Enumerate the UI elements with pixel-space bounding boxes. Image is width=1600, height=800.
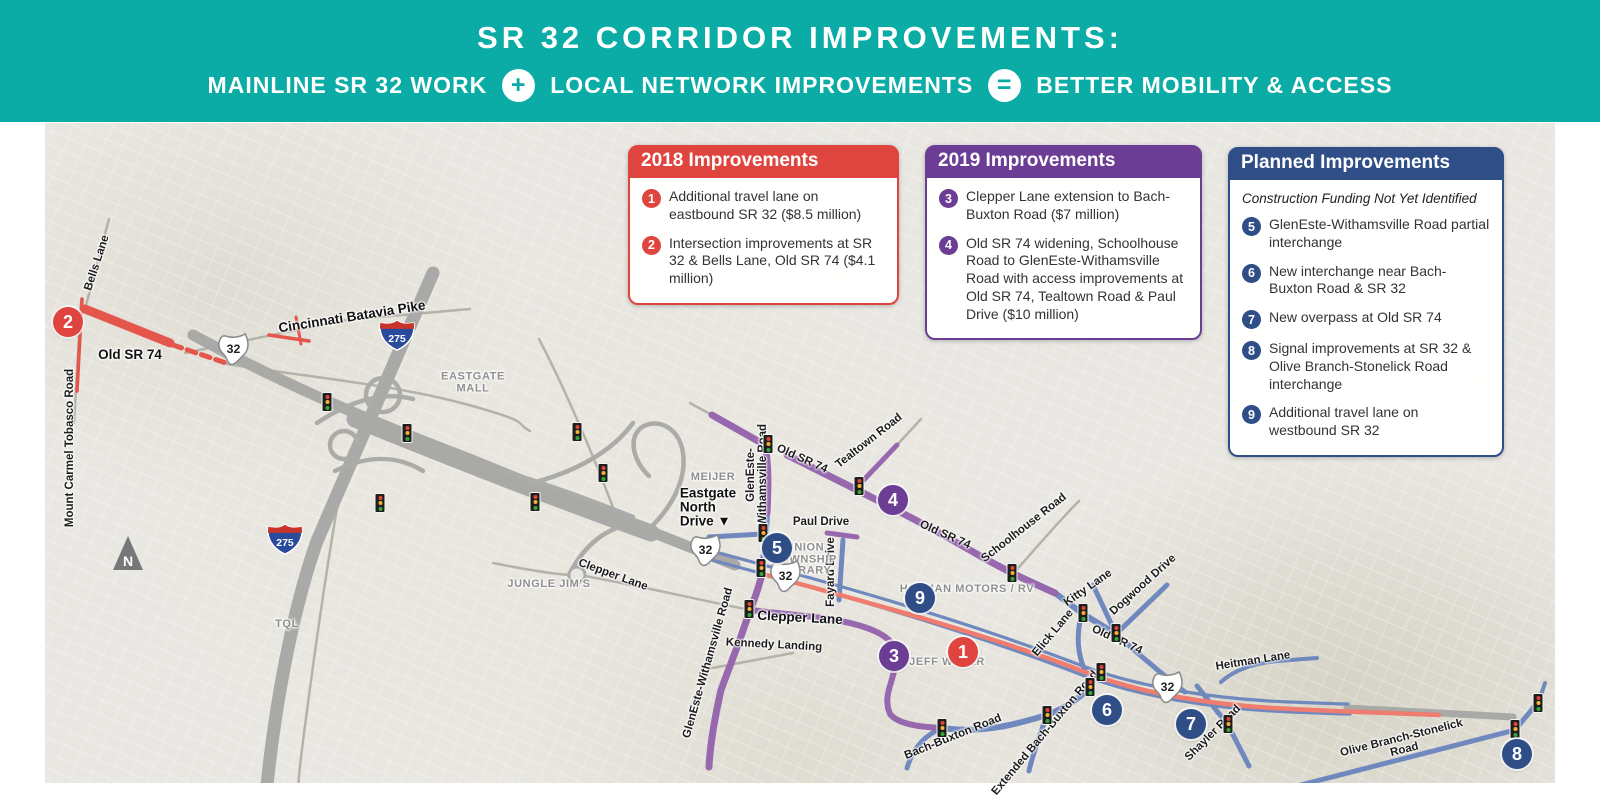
item-number-badge: 3: [939, 189, 958, 208]
item-text: Additional travel lane on westbound SR 3…: [1269, 404, 1490, 440]
improvement-item: 8Signal improvements at SR 32 & Olive Br…: [1242, 340, 1490, 393]
sr32-shield-number: 32: [779, 569, 793, 583]
box-body: 1Additional travel lane on eastbound SR …: [630, 178, 897, 303]
improvement-item: 7New overpass at Old SR 74: [1242, 309, 1490, 329]
box-header: 2019 Improvements: [926, 146, 1201, 178]
page-header: SR 32 CORRIDOR IMPROVEMENTS: MAINLINE SR…: [0, 0, 1600, 122]
page-title: SR 32 CORRIDOR IMPROVEMENTS:: [477, 20, 1123, 56]
equals-icon: =: [988, 69, 1021, 102]
roundabout: [569, 567, 585, 583]
route-shield-sr32: 32: [768, 559, 802, 600]
route-shield-i275: 275: [378, 319, 416, 357]
sr32-shield-number: 32: [699, 543, 713, 557]
map-marker-6: 6: [1092, 695, 1122, 725]
map-marker-4: 4: [878, 485, 908, 515]
route-shield-i275: 275: [266, 523, 304, 561]
traffic-light-icon: [1111, 623, 1122, 643]
traffic-light-icon: [744, 599, 755, 619]
box-header: Planned Improvements: [1229, 148, 1503, 180]
i275-shield-number: 275: [388, 334, 406, 345]
item-text: Additional travel lane on eastbound SR 3…: [669, 188, 885, 224]
improvement-item: 9Additional travel lane on westbound SR …: [1242, 404, 1490, 440]
box-body: Construction Funding Not Yet Identified5…: [1230, 180, 1502, 455]
improvement-item: 5GlenEste-Withamsville Road partial inte…: [1242, 216, 1490, 252]
blue-network-roads: [709, 513, 1545, 783]
improvement-item: 3Clepper Lane extension to Bach-Buxton R…: [939, 188, 1188, 224]
sr32-shield-number: 32: [227, 342, 241, 356]
improvements-2019-roads: [709, 415, 1055, 767]
traffic-light-icon: [1078, 603, 1089, 623]
item-text: Intersection improvements at SR 32 & Bel…: [669, 235, 885, 288]
north-arrow-label: N: [123, 553, 133, 569]
box-header: 2018 Improvements: [629, 146, 898, 178]
box-body: 3Clepper Lane extension to Bach-Buxton R…: [927, 178, 1200, 338]
map-marker-3: 3: [879, 641, 909, 671]
traffic-light-icon: [1223, 714, 1234, 734]
equation-term-local: LOCAL NETWORK IMPROVEMENTS: [550, 72, 973, 99]
improvement-item: 1Additional travel lane on eastbound SR …: [642, 188, 885, 224]
item-number-badge: 8: [1242, 341, 1261, 360]
header-equation: MAINLINE SR 32 WORK + LOCAL NETWORK IMPR…: [208, 69, 1393, 102]
traffic-light-icon: [763, 434, 774, 454]
equation-term-result: BETTER MOBILITY & ACCESS: [1036, 72, 1392, 99]
item-text: GlenEste-Withamsville Road partial inter…: [1269, 216, 1490, 252]
item-number-badge: 7: [1242, 310, 1261, 329]
item-number-badge: 9: [1242, 405, 1261, 424]
traffic-light-icon: [756, 558, 767, 578]
traffic-light-icon: [1007, 563, 1018, 583]
sr32-shield-number: 32: [1161, 680, 1175, 694]
i275-shield-number: 275: [276, 538, 294, 549]
improvements-box-2018: 2018 Improvements1Additional travel lane…: [628, 145, 899, 305]
improvements-box-planned: Planned ImprovementsConstruction Funding…: [1228, 147, 1504, 457]
route-shield-sr32: 32: [1150, 670, 1184, 711]
traffic-light-icon: [402, 423, 413, 443]
equation-term-mainline: MAINLINE SR 32 WORK: [208, 72, 488, 99]
map-marker-1: 1: [948, 637, 978, 667]
traffic-light-icon: [1533, 693, 1544, 713]
traffic-light-icon: [854, 476, 865, 496]
north-arrow-icon: N: [113, 536, 143, 570]
traffic-light-icon: [530, 492, 541, 512]
improvements-box-2019: 2019 Improvements3Clepper Lane extension…: [925, 145, 1202, 340]
item-number-badge: 4: [939, 236, 958, 255]
item-text: Old SR 74 widening, Schoolhouse Road to …: [966, 235, 1188, 324]
sr32-corridor: [693, 546, 1439, 715]
map-marker-7: 7: [1176, 709, 1206, 739]
traffic-light-icon: [375, 493, 386, 513]
item-text: New interchange near Bach-Buxton Road & …: [1269, 263, 1490, 299]
item-number-badge: 2: [642, 236, 661, 255]
map-marker-8: 8: [1502, 739, 1532, 769]
route-shield-sr32: 32: [216, 332, 250, 373]
map-marker-9: 9: [905, 583, 935, 613]
improvement-item: 4Old SR 74 widening, Schoolhouse Road to…: [939, 235, 1188, 324]
item-text: New overpass at Old SR 74: [1269, 309, 1442, 329]
improvement-item: 2Intersection improvements at SR 32 & Be…: [642, 235, 885, 288]
item-number-badge: 5: [1242, 217, 1261, 236]
traffic-light-icon: [1042, 705, 1053, 725]
route-shield-sr32: 32: [688, 533, 722, 574]
funding-note: Construction Funding Not Yet Identified: [1242, 191, 1490, 206]
traffic-light-icon: [598, 463, 609, 483]
traffic-light-icon: [572, 422, 583, 442]
item-number-badge: 1: [642, 189, 661, 208]
map-marker-2: 2: [53, 307, 83, 337]
traffic-light-icon: [1510, 719, 1521, 739]
plus-icon: +: [502, 69, 535, 102]
map-marker-5: 5: [762, 533, 792, 563]
item-number-badge: 6: [1242, 264, 1261, 283]
improvement-item: 6New interchange near Bach-Buxton Road &…: [1242, 263, 1490, 299]
traffic-light-icon: [322, 392, 333, 412]
traffic-light-icon: [1085, 677, 1096, 697]
traffic-light-icon: [937, 718, 948, 738]
item-text: Signal improvements at SR 32 & Olive Bra…: [1269, 340, 1490, 393]
item-text: Clepper Lane extension to Bach-Buxton Ro…: [966, 188, 1188, 224]
traffic-light-icon: [1096, 662, 1107, 682]
